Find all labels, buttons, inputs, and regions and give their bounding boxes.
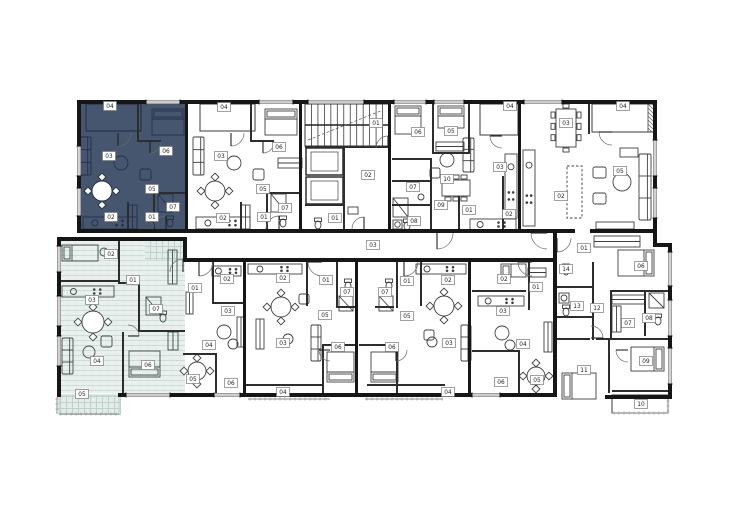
floor-plan-svg: 0403060507020104030605070201010201060504… xyxy=(0,0,733,518)
floor-plan-page: 0403060507020104030605070201010201060504… xyxy=(0,0,733,518)
apartment-b[interactable] xyxy=(188,104,300,229)
apartment-j[interactable] xyxy=(557,233,668,397)
svg-text:10: 10 xyxy=(637,402,645,408)
apartment-g[interactable] xyxy=(246,262,355,393)
apartment-a-highlighted[interactable] xyxy=(81,104,187,229)
room-label-10: 10 xyxy=(635,400,648,409)
apartment-c[interactable] xyxy=(391,104,518,233)
apartment-h[interactable] xyxy=(358,262,468,393)
apartment-f[interactable] xyxy=(186,262,243,393)
apartment-e-highlighted[interactable] xyxy=(61,241,185,415)
corridor[interactable] xyxy=(187,233,553,258)
stair-core[interactable] xyxy=(302,104,388,233)
apartment-i[interactable] xyxy=(471,262,553,393)
